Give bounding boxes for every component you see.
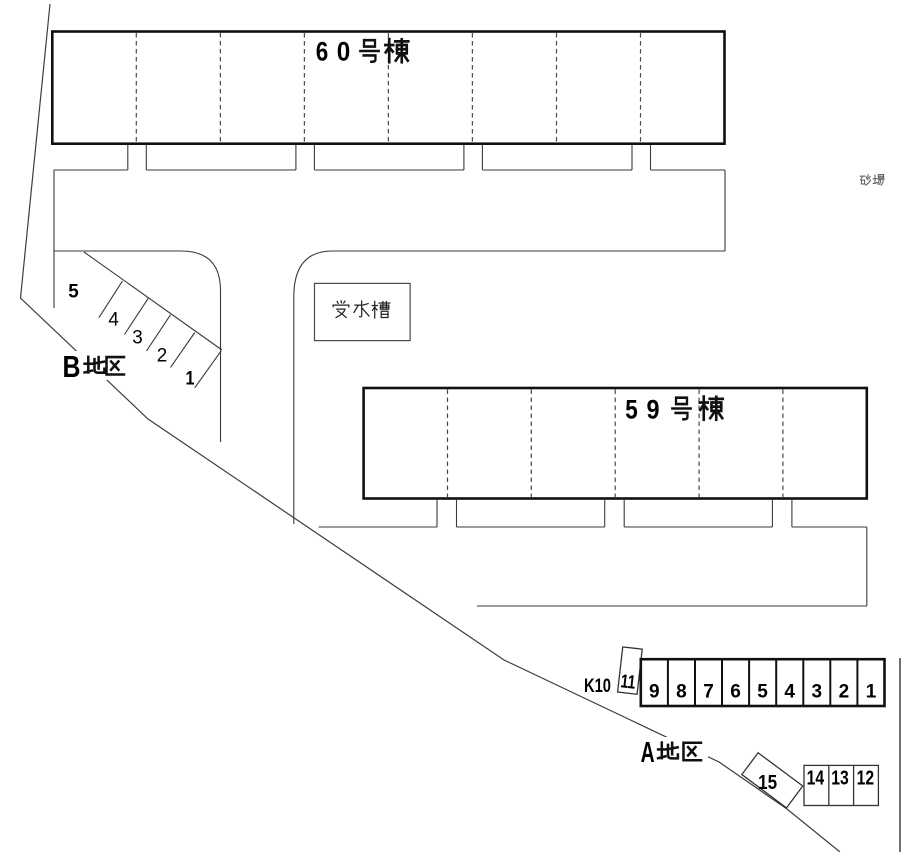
svg-text:4: 4 xyxy=(108,310,119,331)
svg-text:11: 11 xyxy=(619,671,637,694)
svg-text:5: 5 xyxy=(757,682,768,703)
svg-text:13: 13 xyxy=(831,768,849,790)
svg-text:12: 12 xyxy=(857,768,875,790)
svg-text:5: 5 xyxy=(68,282,79,303)
svg-text:3: 3 xyxy=(132,328,143,349)
svg-text:6: 6 xyxy=(730,682,741,703)
svg-text:B: B xyxy=(63,349,81,384)
svg-text:8: 8 xyxy=(676,682,687,703)
svg-text:9: 9 xyxy=(647,395,660,425)
svg-text:6: 6 xyxy=(316,37,329,67)
svg-text:0: 0 xyxy=(337,37,351,67)
svg-text:2: 2 xyxy=(157,346,168,367)
svg-text:2: 2 xyxy=(839,682,850,703)
svg-text:9: 9 xyxy=(649,682,660,703)
svg-text:1: 1 xyxy=(866,682,877,703)
svg-text:14: 14 xyxy=(807,768,825,790)
svg-text:3: 3 xyxy=(812,682,823,703)
svg-text:5: 5 xyxy=(625,395,638,425)
svg-text:A: A xyxy=(641,737,655,769)
svg-text:K10: K10 xyxy=(584,676,611,697)
svg-text:4: 4 xyxy=(784,682,795,703)
svg-text:7: 7 xyxy=(703,682,714,703)
svg-text:1: 1 xyxy=(186,369,195,390)
svg-text:15: 15 xyxy=(758,772,777,794)
